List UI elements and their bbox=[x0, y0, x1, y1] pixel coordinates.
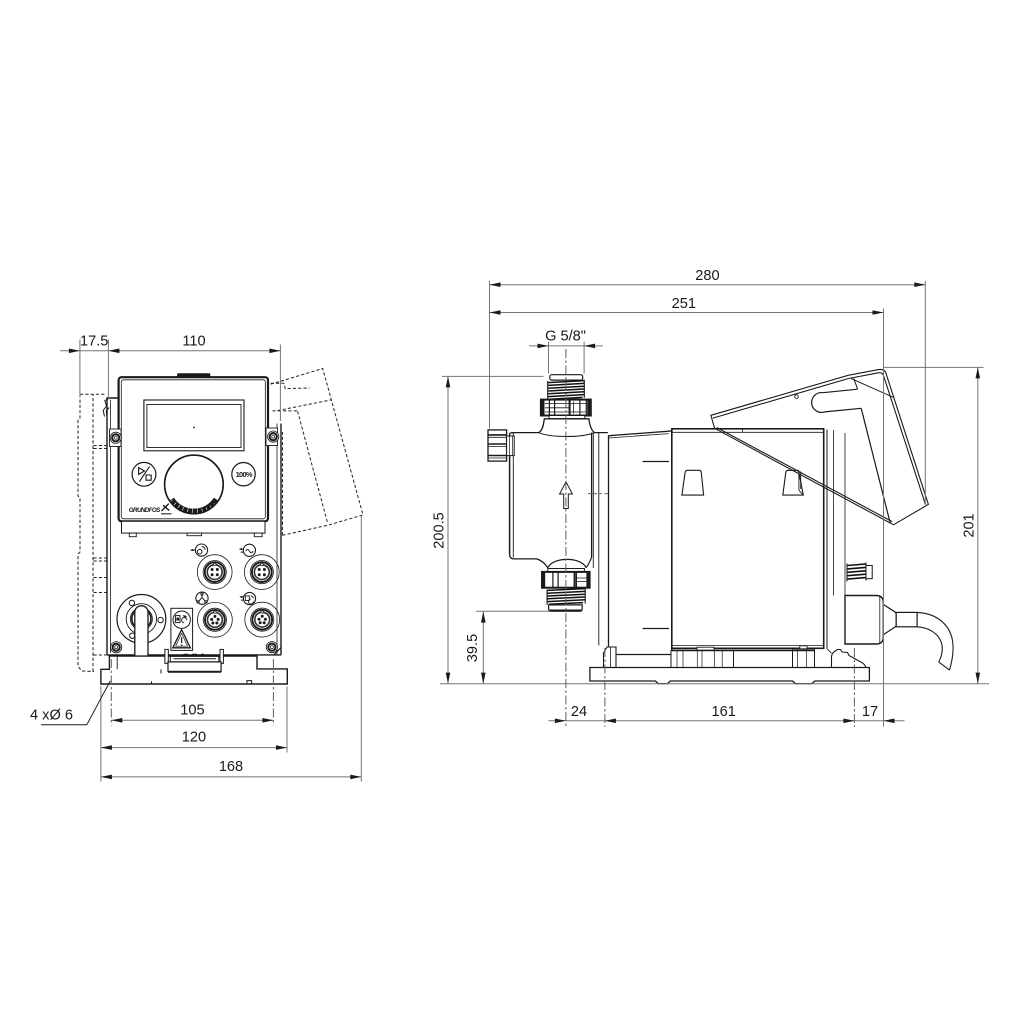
svg-text:39.5: 39.5 bbox=[465, 634, 481, 662]
svg-text:168: 168 bbox=[219, 759, 243, 775]
svg-text:161: 161 bbox=[712, 704, 736, 720]
svg-text:17: 17 bbox=[862, 704, 878, 720]
svg-text:4 xØ 6: 4 xØ 6 bbox=[30, 708, 73, 724]
svg-text:110: 110 bbox=[182, 333, 205, 349]
svg-text:100%: 100% bbox=[236, 470, 253, 479]
svg-text:24: 24 bbox=[571, 704, 587, 720]
svg-text:251: 251 bbox=[672, 296, 696, 312]
svg-text:200.5: 200.5 bbox=[432, 512, 448, 549]
svg-text:17.5: 17.5 bbox=[80, 333, 108, 349]
svg-text:105: 105 bbox=[180, 703, 204, 719]
svg-text:G 5/8": G 5/8" bbox=[545, 328, 586, 344]
svg-text:201: 201 bbox=[962, 513, 978, 537]
svg-text:120: 120 bbox=[182, 730, 206, 746]
svg-text:280: 280 bbox=[695, 268, 719, 284]
svg-text:GRUNDFOS: GRUNDFOS bbox=[129, 507, 161, 514]
